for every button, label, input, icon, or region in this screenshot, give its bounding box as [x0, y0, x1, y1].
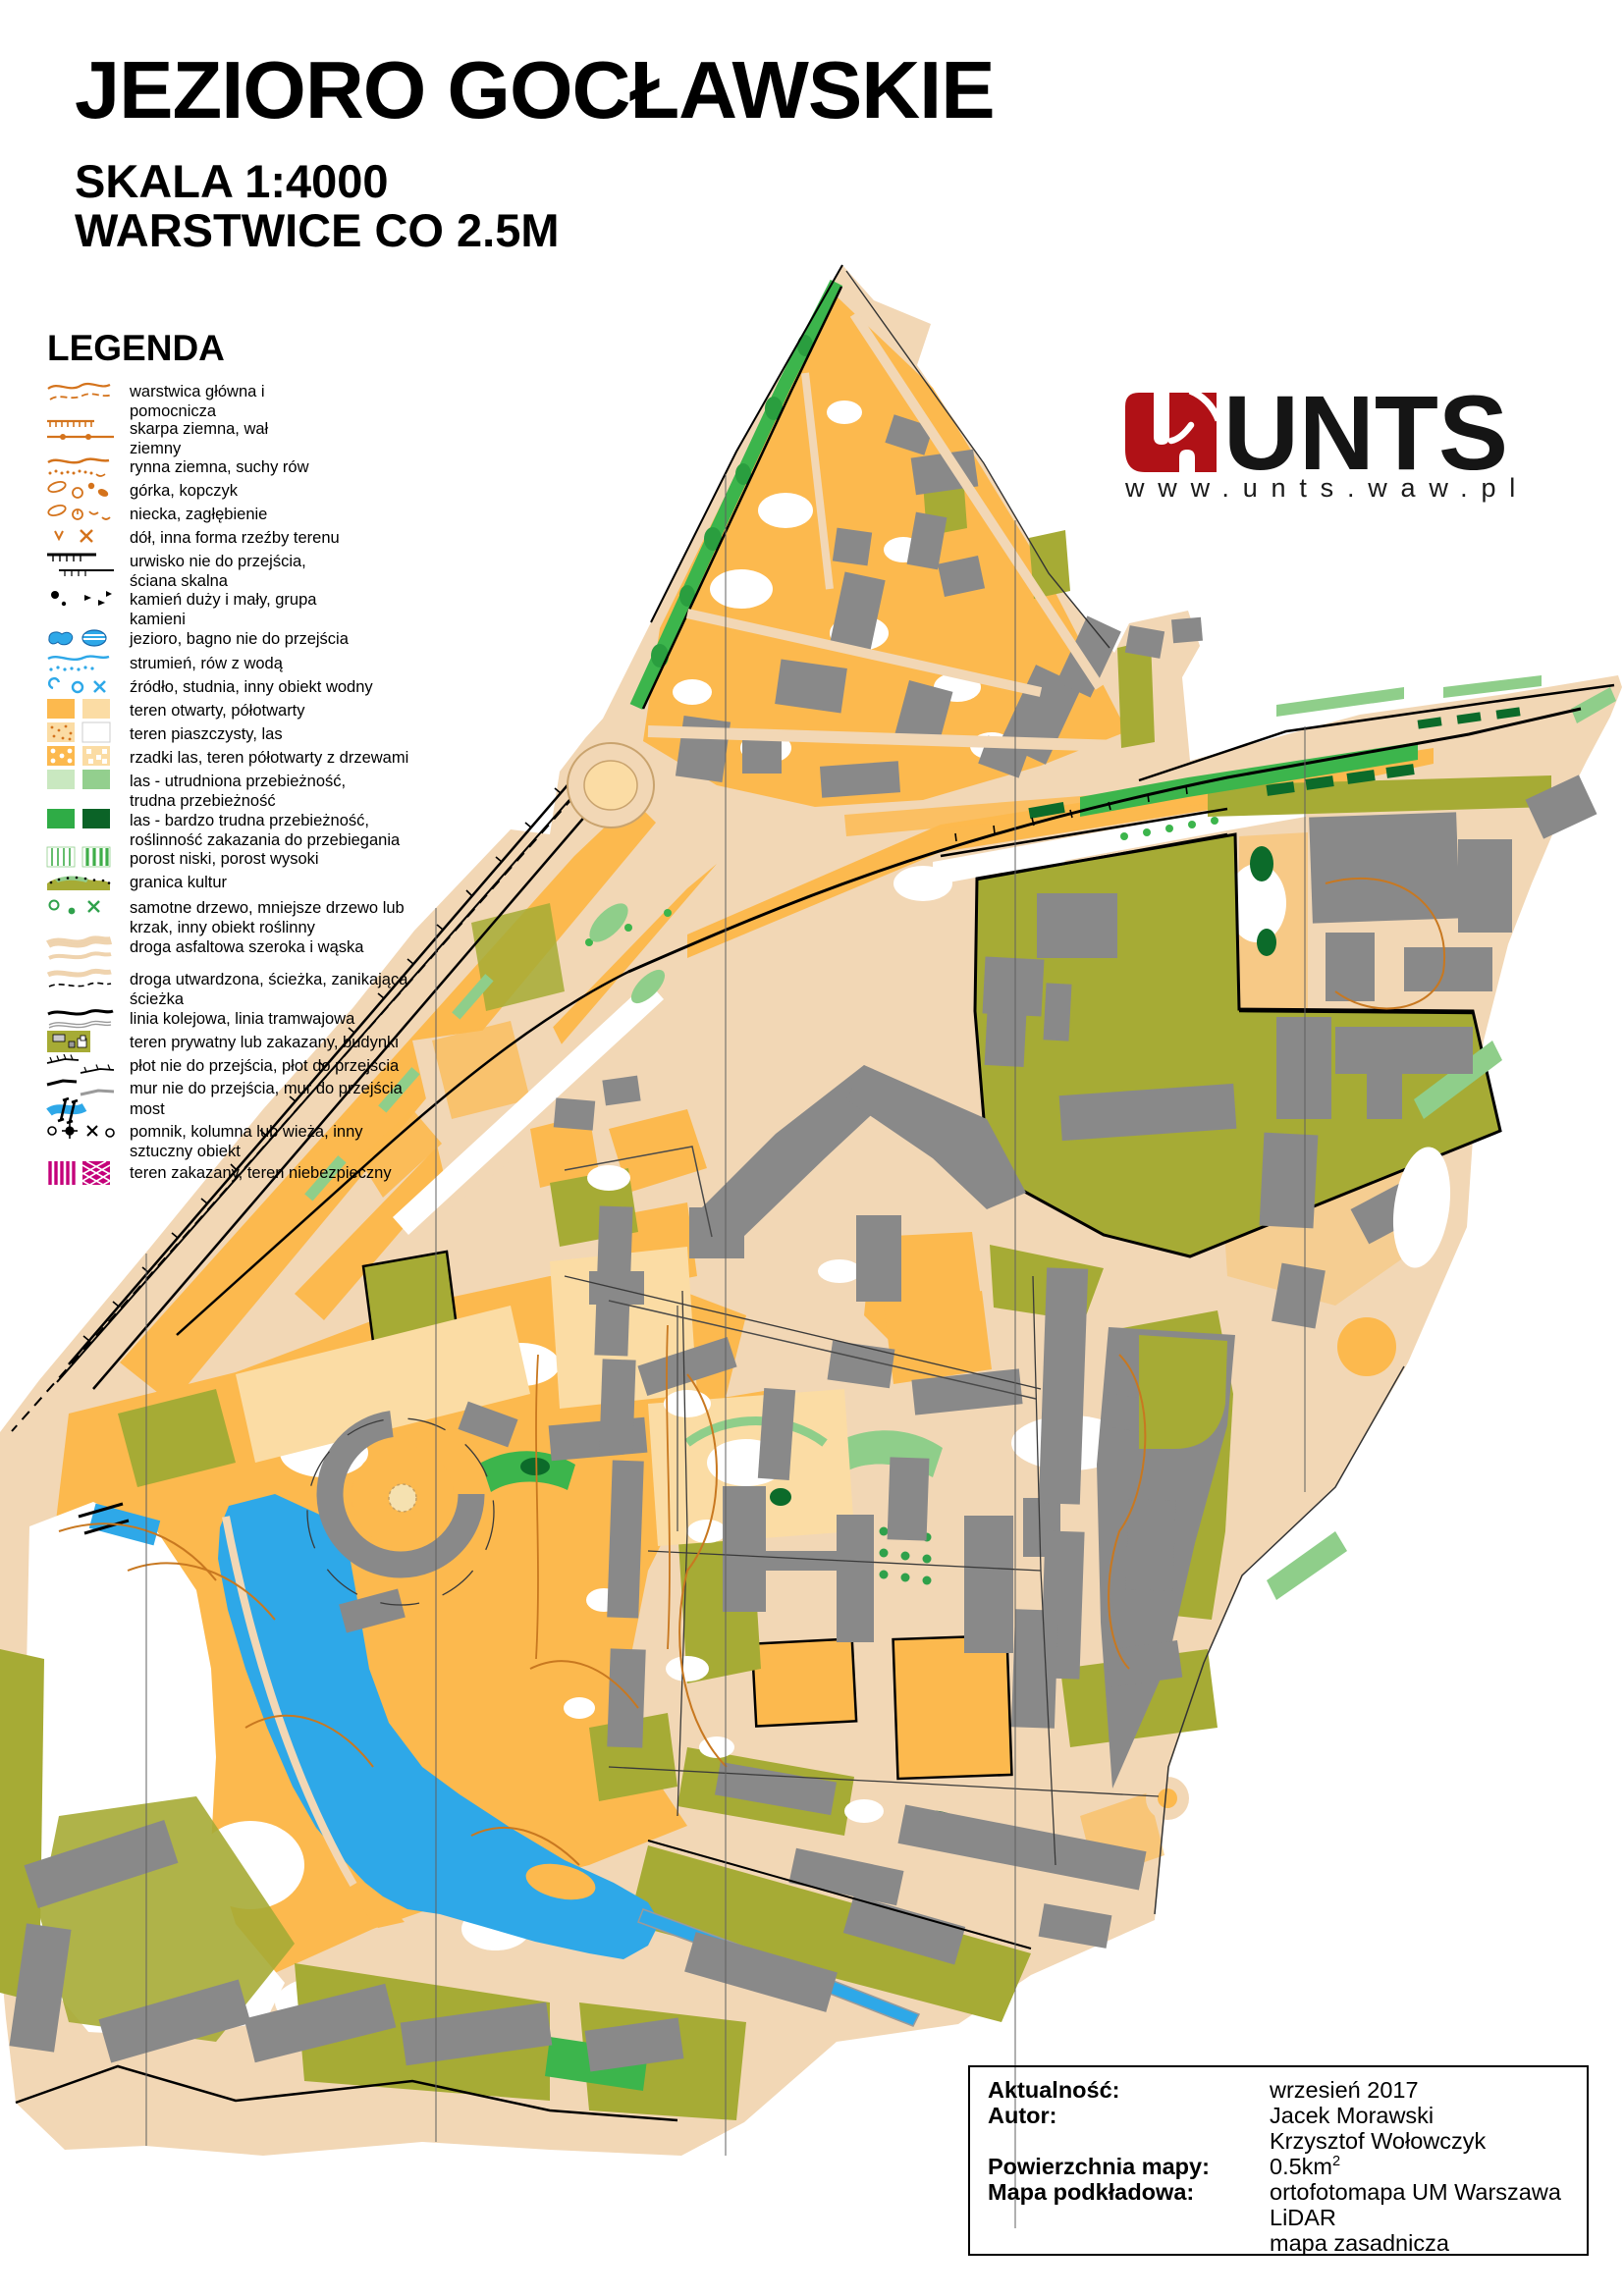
svg-text:UNTS: UNTS: [1223, 387, 1508, 480]
